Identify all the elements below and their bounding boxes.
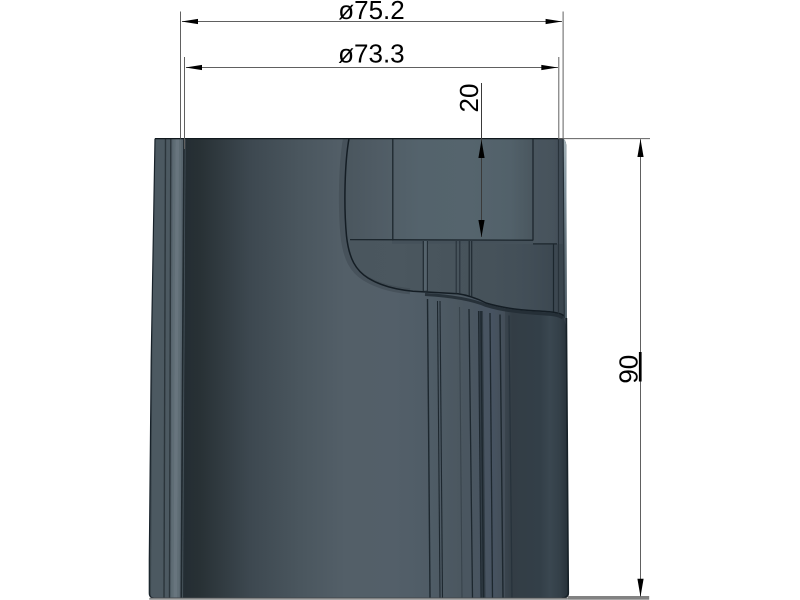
svg-text:90: 90 [613,355,643,384]
svg-text:ø75.2: ø75.2 [338,0,405,25]
svg-text:20: 20 [454,84,484,113]
svg-text:ø73.3: ø73.3 [338,39,405,69]
